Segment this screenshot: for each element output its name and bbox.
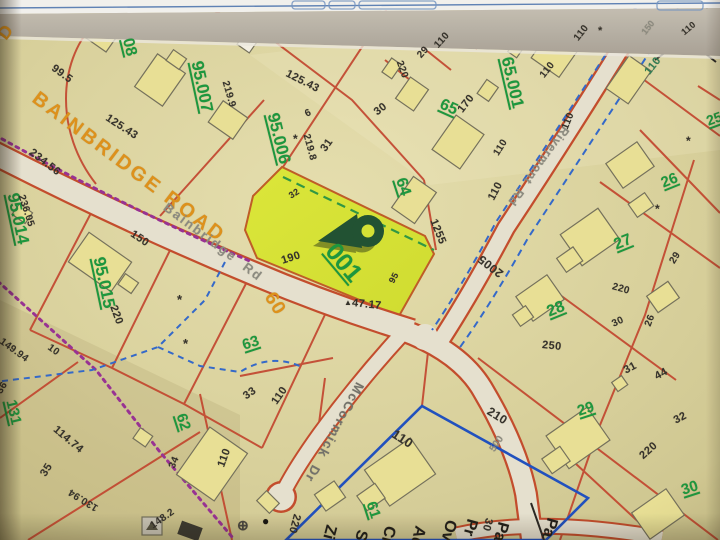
dimension-label: 150: [128, 229, 150, 249]
parcel-number-label: 28: [545, 299, 567, 321]
parcel-number-label: 001: [320, 239, 366, 287]
dimension-label: 10: [45, 343, 61, 358]
road-name-label: Rivermont Rd: [506, 124, 572, 208]
dimension-label: 6: [304, 108, 314, 120]
parcel-number-label: 29: [575, 399, 596, 418]
dimension-label: 234.56: [27, 147, 62, 178]
parcel-number-label: 95.015: [91, 255, 118, 309]
triangle-marker: ▲: [344, 299, 352, 307]
cutoff-text-fragment: Ci: [378, 524, 398, 540]
road-name-label: D: [0, 22, 16, 43]
dimension-label: 110: [433, 31, 452, 51]
dimension-label: 170: [456, 93, 477, 115]
dimension-label: 114.74: [51, 424, 85, 455]
dimension-label: 210: [485, 405, 509, 426]
dimension-label: 220: [394, 60, 410, 80]
asterisk-symbol: *: [177, 293, 182, 306]
dot-symbol: ●: [262, 515, 269, 527]
dimension-label: 219.9: [220, 80, 237, 109]
parcel-number-label: 95.007: [189, 59, 216, 113]
road-name-label: 60: [261, 289, 289, 319]
parcel-number-label: 131: [3, 398, 23, 426]
dimension-label: 110: [539, 60, 558, 80]
dimension-label: 2005: [476, 253, 506, 280]
dimension-label: 32: [672, 411, 689, 427]
dimension-label: 220: [638, 440, 660, 461]
map-labels: 0895.00795.006646565.00195.01495.0156362…: [0, 0, 720, 540]
dimension-label: 31: [622, 361, 639, 377]
circled-plus-symbol: ⊕: [237, 518, 249, 532]
cutoff-text-fragment: Pa: [490, 520, 511, 540]
dimension-label: 220: [286, 513, 302, 535]
cutoff-text-fragment: St: [350, 528, 370, 540]
road-number-label: 500: [488, 435, 506, 454]
dimension-label: 26: [644, 313, 657, 328]
dimension-label: 95: [388, 271, 401, 285]
dimension-label: 125.43: [284, 69, 321, 95]
parcel-number-label: 65.001: [499, 55, 527, 109]
dimension-label: 110: [487, 180, 506, 202]
dimension-label: 29: [668, 250, 683, 265]
dimension-label: 130.94: [67, 486, 100, 512]
parcel-number-label: 61: [364, 500, 383, 521]
map-photo: 0895.00795.006646565.00195.01495.0156362…: [0, 0, 720, 540]
dimension-label: 29: [416, 45, 431, 61]
dimension-label: 110: [216, 447, 233, 469]
dimension-label: 32: [287, 187, 301, 200]
dimension-label: 220: [107, 304, 124, 326]
dimension-label: 110: [390, 427, 416, 450]
asterisk-symbol: *: [598, 26, 602, 37]
dimension-label: 36: [0, 380, 10, 395]
parcel-number-label: 30: [679, 478, 700, 497]
road-number-label: 150: [640, 19, 656, 36]
parcel-number-label: 63: [240, 333, 261, 352]
dimension-label: 110: [643, 55, 663, 77]
dimension-label: 220: [611, 282, 631, 297]
dimension-label: 44: [653, 367, 670, 383]
cutoff-text-fragment: Ov: [438, 518, 459, 540]
dimension-label: 190: [280, 250, 302, 267]
dimension-label: 33: [242, 386, 259, 402]
cutoff-text-fragment: Ad: [407, 524, 428, 540]
parcel-number-label: 08: [119, 37, 139, 58]
parcel-number-label: 25: [704, 109, 720, 127]
dimension-label: 30: [611, 315, 626, 329]
parcel-number-label: 95.006: [265, 111, 294, 166]
road-name-label: Bainbridge Rd: [161, 200, 265, 283]
dimension-label: 110: [270, 385, 290, 407]
parcel-number-label: 62: [174, 412, 193, 433]
asterisk-symbol: *: [655, 203, 660, 215]
dimension-label: 34: [168, 455, 182, 470]
dimension-label: 99.5: [49, 63, 74, 85]
cutoff-text-fragment: Pa: [539, 516, 560, 539]
cutoff-text-fragment: Pr: [460, 517, 480, 537]
dimension-label: 35: [39, 462, 55, 479]
parcel-number-label: 27: [612, 232, 634, 254]
asterisk-symbol: *: [183, 337, 188, 350]
dimension-label: 30: [372, 101, 389, 118]
dimension-label: 250: [541, 340, 562, 353]
dimension-label: 110: [680, 20, 698, 37]
dimension-label: 31: [319, 137, 335, 154]
dimension-label: 148.2: [149, 507, 177, 531]
dimension-label: 110: [573, 23, 592, 43]
screen-photo: 0895.00795.006646565.00195.01495.0156362…: [0, 0, 720, 540]
road-name-label: McCormick Dr: [303, 380, 367, 484]
cutoff-text-fragment: Zi: [319, 523, 338, 540]
dimension-label: 219.8: [301, 133, 318, 162]
parcel-number-label: 64: [392, 176, 413, 198]
asterisk-symbol: *: [686, 135, 691, 147]
dimension-label: 47.17: [351, 298, 382, 312]
dimension-label: 110: [492, 138, 510, 158]
asterisk-symbol: *: [293, 133, 298, 145]
parcel-number-label: 26: [659, 170, 680, 190]
dimension-label: 149.94: [0, 337, 30, 364]
dimension-label: 1255: [427, 218, 447, 246]
